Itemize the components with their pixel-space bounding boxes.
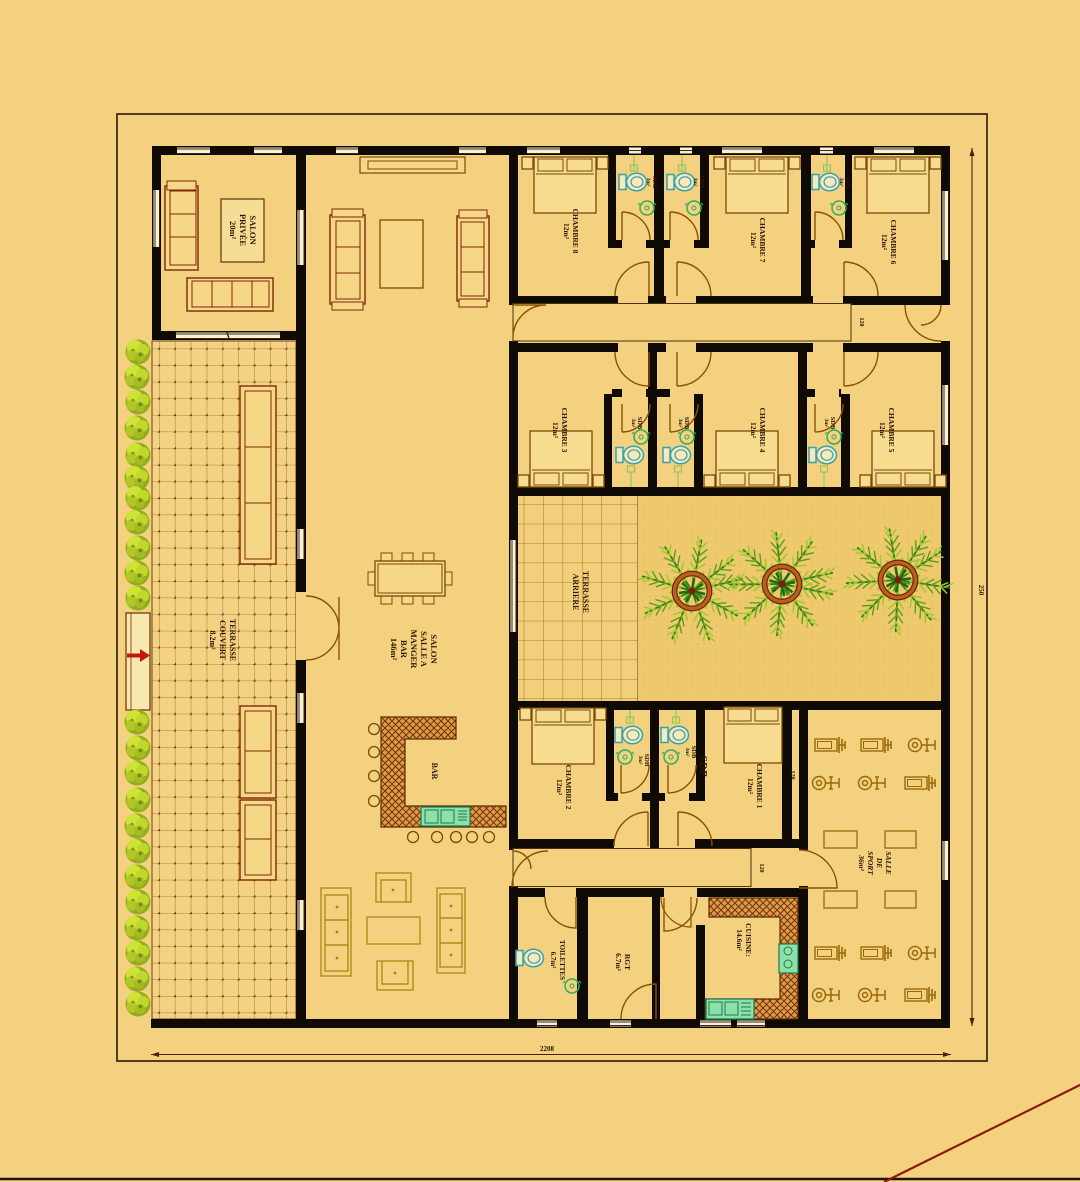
svg-text:3m²: 3m² bbox=[823, 419, 829, 428]
svg-text:PRIVÉE: PRIVÉE bbox=[238, 214, 248, 246]
svg-text:CHAMBRE 1: CHAMBRE 1 bbox=[755, 764, 764, 809]
svg-text:CHAMBRE 7: CHAMBRE 7 bbox=[758, 218, 767, 263]
svg-text:SALLE: SALLE bbox=[884, 851, 893, 874]
svg-text:120: 120 bbox=[758, 864, 764, 873]
svg-text:SDB: SDB bbox=[697, 755, 709, 776]
svg-text:SDB: SDB bbox=[844, 176, 851, 189]
svg-text:14.6m²: 14.6m² bbox=[735, 929, 744, 951]
svg-text:SDB: SDB bbox=[829, 417, 836, 430]
svg-text:SDB: SDB bbox=[643, 754, 650, 767]
svg-text:3m²: 3m² bbox=[677, 419, 683, 428]
svg-text:SDB: SDB bbox=[683, 417, 690, 430]
svg-text:6.7m²: 6.7m² bbox=[549, 952, 557, 969]
svg-text:8.2m²: 8.2m² bbox=[208, 630, 217, 650]
svg-text:RGT: RGT bbox=[623, 954, 632, 970]
svg-text:3m²: 3m² bbox=[684, 748, 690, 757]
svg-text:TERRASSE: TERRASSE bbox=[581, 571, 590, 613]
svg-text:12m²: 12m² bbox=[555, 779, 564, 796]
svg-text:TERRASSE: TERRASSE bbox=[228, 619, 237, 661]
svg-text:SDB: SDB bbox=[636, 417, 643, 430]
svg-text:120: 120 bbox=[858, 318, 864, 327]
svg-text:2208: 2208 bbox=[540, 1045, 555, 1053]
svg-text:250: 250 bbox=[977, 585, 985, 596]
svg-text:DE: DE bbox=[875, 857, 884, 868]
svg-text:6.7m²: 6.7m² bbox=[614, 953, 623, 972]
svg-text:CHAMBRE 2: CHAMBRE 2 bbox=[564, 765, 573, 810]
svg-text:3m²: 3m² bbox=[630, 419, 636, 428]
svg-text:SALON: SALON bbox=[429, 634, 439, 664]
svg-text:COUVERT: COUVERT bbox=[218, 620, 227, 660]
svg-text:12m²: 12m² bbox=[880, 234, 889, 251]
svg-text:SALLE A: SALLE A bbox=[419, 631, 429, 668]
svg-text:CHAMBRE 8: CHAMBRE 8 bbox=[571, 209, 580, 254]
svg-text:SPORT: SPORT bbox=[866, 851, 875, 875]
svg-text:3m²: 3m² bbox=[637, 756, 643, 765]
svg-text:CHAMBRE 6: CHAMBRE 6 bbox=[889, 220, 898, 265]
svg-text:BAR: BAR bbox=[399, 640, 409, 659]
svg-text:TOILETTES: TOILETTES bbox=[558, 940, 566, 980]
svg-text:SDB: SDB bbox=[651, 176, 658, 189]
svg-text:SDB: SDB bbox=[698, 176, 705, 189]
svg-text:12m²: 12m² bbox=[551, 422, 560, 439]
svg-text:12m²: 12m² bbox=[878, 422, 887, 439]
svg-text:12m²: 12m² bbox=[746, 778, 755, 795]
svg-text:CUISINE:: CUISINE: bbox=[744, 923, 753, 957]
svg-text:36m²: 36m² bbox=[857, 854, 866, 871]
svg-text:CHAMBRE 3: CHAMBRE 3 bbox=[560, 408, 569, 453]
svg-text:SDB: SDB bbox=[690, 746, 697, 759]
svg-text:CHAMBRE 5: CHAMBRE 5 bbox=[887, 408, 896, 453]
svg-text:146m²: 146m² bbox=[389, 638, 399, 661]
svg-text:3m²: 3m² bbox=[838, 178, 844, 187]
svg-text:20m²: 20m² bbox=[228, 221, 238, 240]
svg-text:MANGER: MANGER bbox=[409, 630, 419, 670]
svg-text:3m²: 3m² bbox=[692, 178, 698, 187]
svg-text:120: 120 bbox=[789, 771, 795, 780]
svg-text:BAR: BAR bbox=[430, 763, 439, 780]
svg-text:SALON: SALON bbox=[248, 215, 258, 245]
svg-text:12m²: 12m² bbox=[562, 223, 571, 240]
svg-text:12m²: 12m² bbox=[749, 422, 758, 439]
svg-text:ARRIERE: ARRIERE bbox=[571, 574, 580, 611]
svg-text:3m²: 3m² bbox=[645, 178, 651, 187]
svg-text:12m²: 12m² bbox=[749, 232, 758, 249]
svg-text:CHAMBRE 4: CHAMBRE 4 bbox=[758, 408, 767, 453]
